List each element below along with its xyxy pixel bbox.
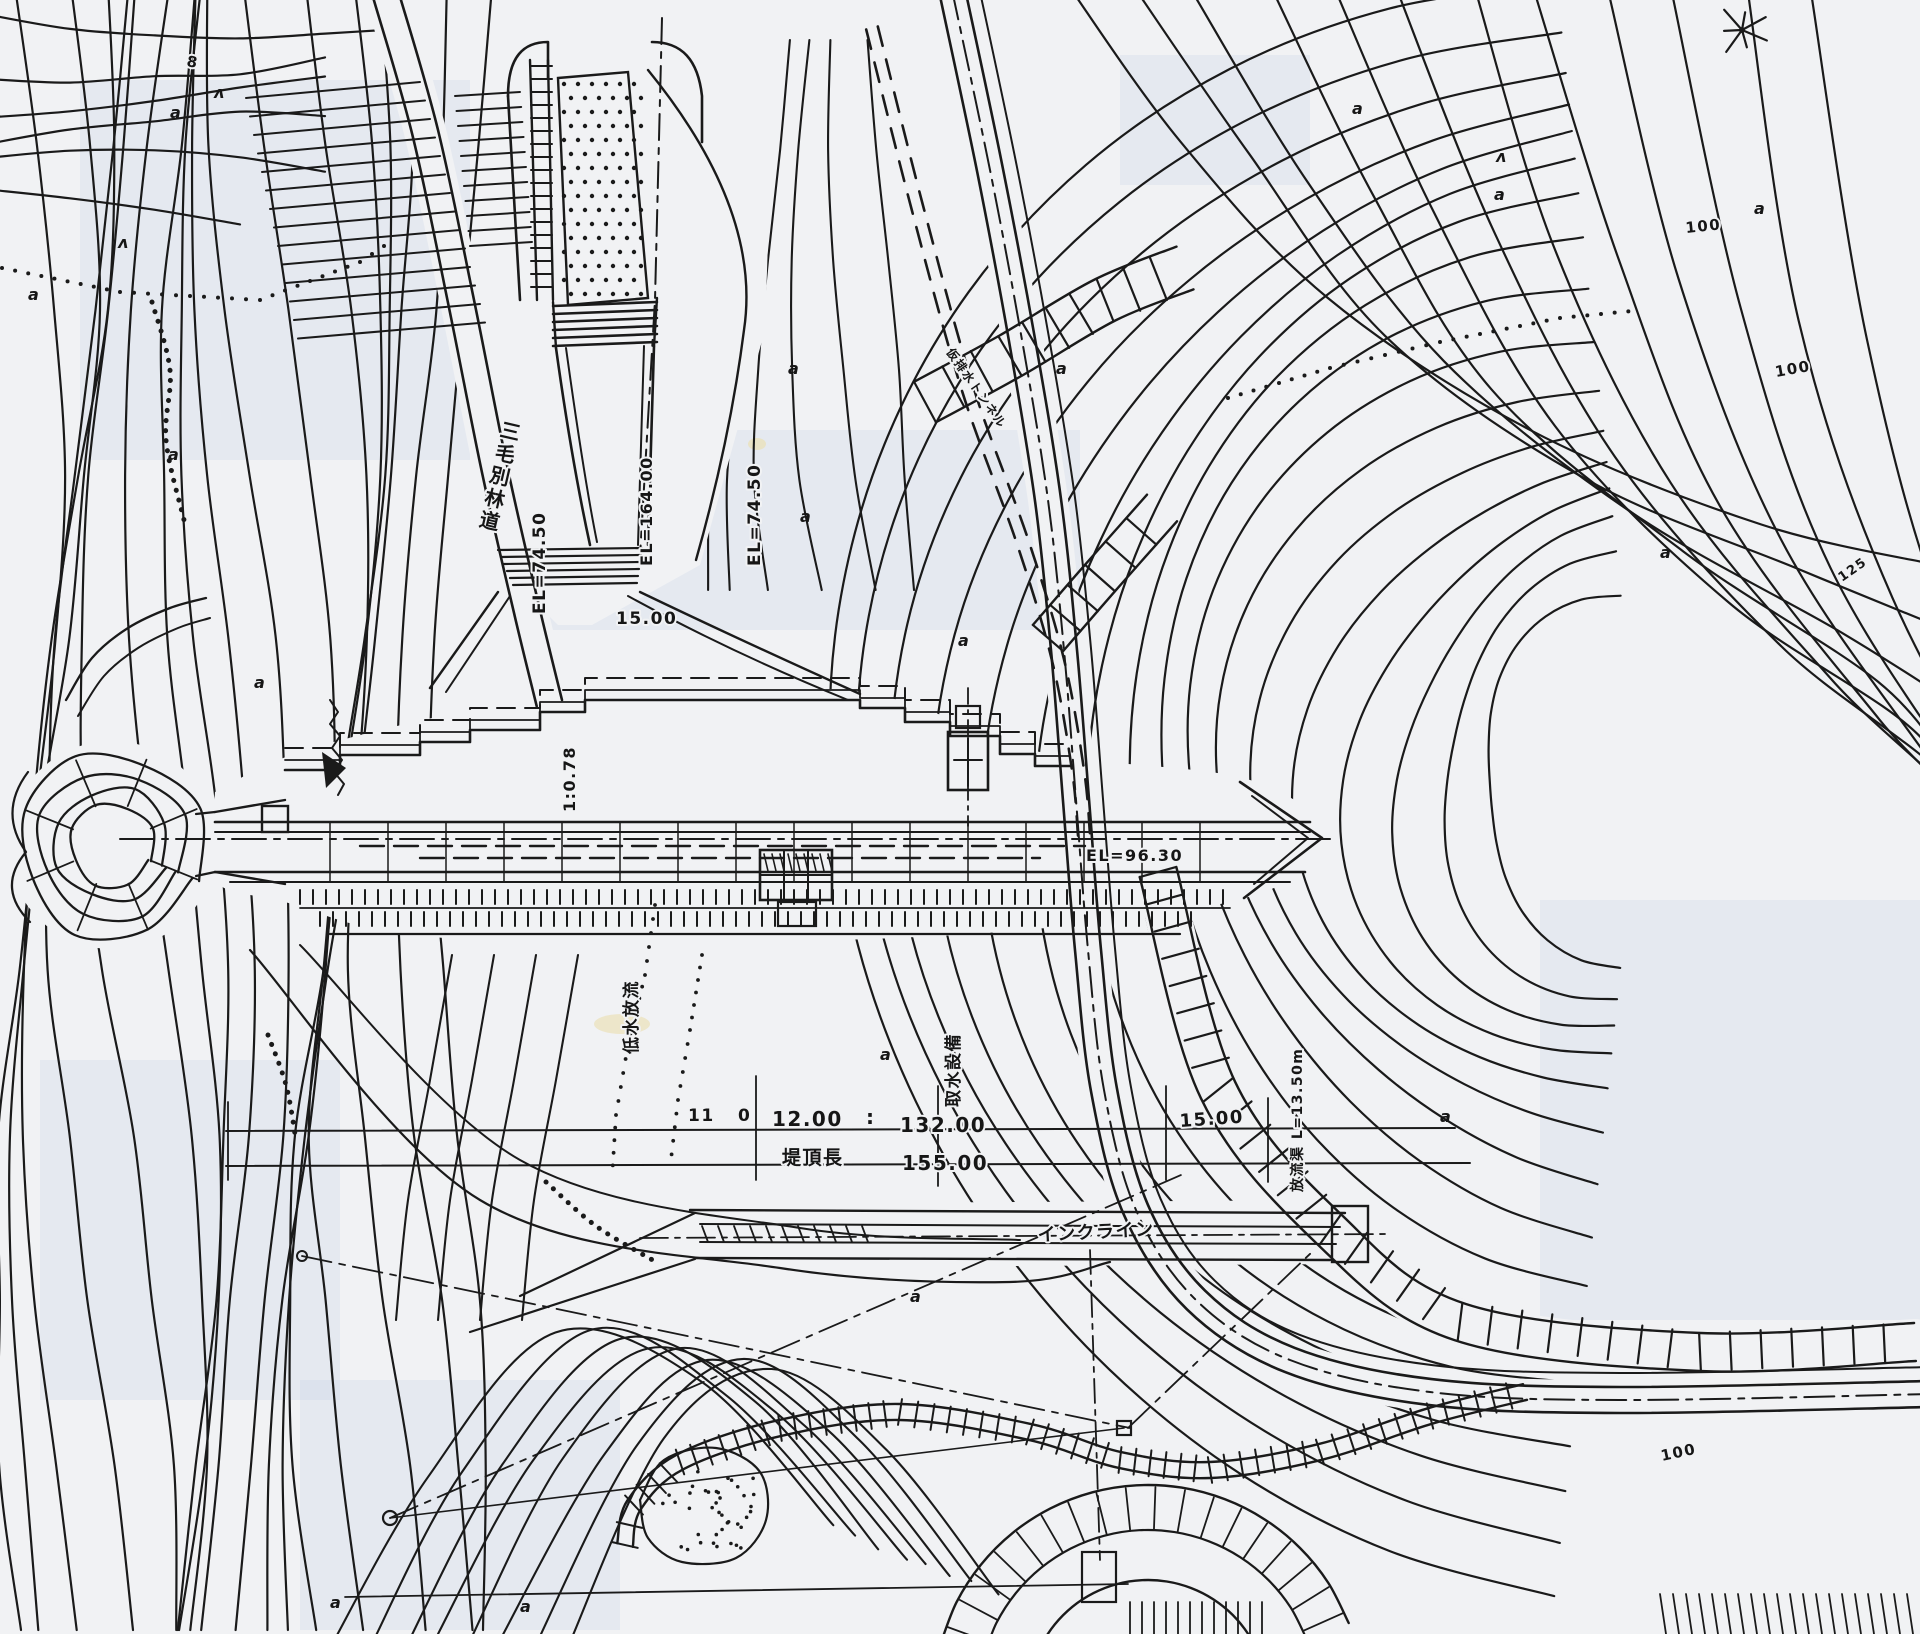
dot-fill [569,208,573,212]
dotted-line [1226,396,1230,400]
dotted-line [1518,324,1522,328]
dotted-line [1465,335,1469,339]
survey-mark: a [1056,359,1067,378]
dot-fill [716,1491,720,1495]
hatch-line [1223,1509,1242,1548]
dot-fill [707,1490,711,1494]
dot-fill [590,222,594,226]
dot-fill [667,1493,671,1497]
contour-line [0,14,410,38]
dotted-line [1356,360,1360,364]
hatch-line [1894,1594,1900,1634]
dot-fill [691,1485,695,1489]
dot-fill [590,82,594,86]
dotted-line [619,1085,623,1089]
dotted-line [643,973,647,977]
dotted-line [681,1070,685,1074]
contour-line [1534,0,1920,1057]
dot-fill [632,138,636,142]
survey-mark: a [910,1287,921,1306]
dotted-line [651,917,655,921]
dotted-line [1315,370,1319,374]
dot-fill [583,180,587,184]
map-label-group: 堤頂長 [782,1147,844,1169]
dotted-line [612,1151,616,1155]
hatch-line [1178,1490,1185,1532]
dotted-line [1585,313,1589,317]
dot-fill [751,1477,755,1481]
map-label-group: 取水設備 [943,1033,964,1107]
map-label-el-center: EL=164.00 [637,456,656,566]
hatch-line [995,1552,1026,1582]
survey-mark: a [330,1593,341,1612]
dot-fill [562,138,566,142]
hatch-line [733,1430,741,1455]
map-label-intake-facility: 取水設備 [943,1033,964,1107]
survey-mark: ʌ [213,83,224,102]
dot-fill [625,236,629,240]
contour-line [522,955,578,1320]
map-label-dim-11: 11 [688,1106,715,1126]
hatch-line [1777,1594,1783,1634]
map-label-group: 100 [1659,1440,1698,1465]
brick-band [1085,565,1115,592]
dot-fill [618,194,622,198]
hatch-line [1842,1594,1848,1634]
hatch-line [1764,1594,1770,1634]
dot-fill [715,1545,719,1549]
dot-fill [569,236,573,240]
dot-fill [742,1494,746,1498]
dotted-line [613,1138,617,1142]
dot-fill [718,1496,722,1500]
hatch-line [947,1407,951,1433]
map-label-el-left: EL=74.50 [530,512,550,614]
dot-fill [735,1543,739,1547]
dotted-line [1424,343,1428,347]
dot-fill [604,82,608,86]
dotted-line [1531,321,1535,325]
hatch-line [1042,1516,1064,1553]
hatch-line [1829,1594,1835,1634]
survey-mark: a [520,1597,531,1616]
dotted-line [675,1112,679,1116]
dot-fill [715,1533,719,1537]
dotted-line [692,1003,696,1007]
map-label-group: 8 [185,52,200,72]
hatch-line [1725,1594,1731,1634]
dot-fill [618,222,622,226]
dot-fill [639,180,643,184]
dot-fill [625,152,629,156]
map-label-group: 155.00 [902,1151,988,1175]
dot-fill [625,264,629,268]
dot-fill [597,264,601,268]
dot-fill [625,208,629,212]
dot-fill [611,292,615,296]
hatch-line [1855,1594,1861,1634]
survey-mark: a [170,103,181,122]
dot-fill [736,1485,740,1489]
dot-fill [673,1501,677,1505]
survey-mark: a [254,673,265,692]
dot-fill [590,138,594,142]
dot-fill [686,1548,690,1552]
dot-fill [618,138,622,142]
dot-fill [597,180,601,184]
dotted-line [673,1125,677,1129]
dotted-line [621,1071,625,1075]
dotted-line [160,292,164,296]
dotted-line [694,991,698,995]
dotted-line [258,298,262,302]
dotted-line [244,297,248,301]
dot-fill [604,110,608,114]
dot-fill [583,292,587,296]
map-label-dim-0: 0 [738,1106,751,1126]
dot-fill [730,1478,734,1482]
dot-fill [583,124,587,128]
map-label-contour-100-b: 100 [1774,357,1812,381]
dotted-line [202,295,206,299]
map-label-dim-155: 155.00 [902,1151,988,1175]
hatch-line [704,1440,712,1465]
dotted-line [1491,329,1495,333]
map-label-el-crest: EL=96.30 [1086,846,1183,865]
dotted-line [13,269,17,273]
dot-fill [583,236,587,240]
survey-mark: a [880,1045,891,1064]
dot-fill [576,138,580,142]
dot-fill [576,222,580,226]
dotted-line [52,277,56,281]
dot-fill [590,250,594,254]
dot-fill [749,1510,753,1514]
dot-fill [618,110,622,114]
map-label-group: 1:0.78 [560,746,579,812]
survey-mark: a [1440,1107,1451,1126]
survey-mark: a [1754,199,1765,218]
survey-mark: ʌ [1495,147,1506,166]
map-label-dim-colon: : [866,1105,876,1129]
channel-wall [430,592,498,688]
dot-fill [562,166,566,170]
dot-fill [688,1491,692,1495]
map-label-slope-ratio: 1:0.78 [560,746,579,812]
dot-fill [752,1493,756,1497]
hatch-line [1673,1594,1679,1634]
dotted-line [1558,316,1562,320]
dot-fill [696,1470,700,1474]
dot-fill [569,96,573,100]
dot-fill [639,124,643,128]
dot-fill [576,250,580,254]
dot-fill [611,208,615,212]
dotted-line [1303,374,1307,378]
map-label-group: 放流渠 L=13.50m [1289,1048,1306,1193]
scarp-line [78,618,210,716]
dotted-line [1369,356,1373,360]
dotted-line [1397,350,1401,354]
dotted-line [649,931,653,935]
dotted-line [382,244,386,248]
dot-fill [590,166,594,170]
hatch-line [1699,1594,1705,1634]
dotted-line [647,945,651,949]
dot-fill [597,96,601,100]
hatch-line [1255,1449,1259,1475]
map-label-group: 15.00 [616,609,677,629]
map-label-group: EL=96.30 [1086,846,1183,865]
brick-band [1106,541,1136,568]
map-label-crest-length: 堤頂長 [782,1147,844,1169]
dotted-line [370,252,374,256]
dotted-line [358,260,362,264]
dotted-line [230,296,234,300]
dot-fill [562,222,566,226]
dot-fill [736,1522,740,1526]
map-label-group: 11 [688,1106,715,1126]
hatch-line [1738,1594,1744,1634]
dot-fill [597,124,601,128]
dot-fill [604,166,608,170]
dotted-line [1342,363,1346,367]
dot-fill [679,1545,683,1549]
hatch-line [617,1522,642,1528]
dot-fill [590,278,594,282]
brick-band [1150,257,1167,300]
dot-fill [583,96,587,100]
dotted-line [698,966,702,970]
dotted-line [683,1056,687,1060]
contour-line [1473,0,1920,981]
hatch-line [1907,1594,1913,1634]
dot-fill [688,1507,692,1511]
dot-fill [625,180,629,184]
dot-fill [576,166,580,170]
hatch-line [960,1600,998,1620]
star-symbol [1739,27,1745,33]
dot-fill [576,82,580,86]
dot-fill [661,1502,665,1506]
dot-fill [604,222,608,226]
map-label-contour-100-c: 100 [1659,1440,1698,1465]
scan-tint [1120,55,1310,185]
dotted-line [216,296,220,300]
hatch-line [1292,1587,1328,1610]
dotted-line [105,287,109,291]
map-label-dim-12: 12.00 [772,1107,843,1131]
map-label-group: 低水放流 [621,980,642,1055]
hatch-line [1278,1563,1311,1591]
hatch-line [1017,1532,1043,1566]
dot-fill [632,166,636,170]
dot-fill [569,124,573,128]
survey-mark: a [28,285,39,304]
dot-fill [618,250,622,254]
dot-fill [562,250,566,254]
dotted-line [670,1153,674,1157]
hatch-line [1816,1594,1822,1634]
map-label-group: 12.00 [772,1107,843,1131]
dot-fill [632,278,636,282]
dot-fill [562,194,566,198]
dot-fill [576,110,580,114]
dot-fill [604,194,608,198]
hatch-line [976,1575,1011,1600]
map-label-group: 100 [1685,215,1722,237]
hatch-line [1790,1594,1796,1634]
hatch-line [1154,1487,1156,1530]
dotted-line [66,279,70,283]
dot-fill [618,166,622,170]
dotted-line [321,274,325,278]
dot-fill [714,1501,718,1505]
dot-fill [729,1542,733,1546]
dot-fill [739,1525,743,1529]
hatch-line [1868,1594,1874,1634]
dot-fill [632,110,636,114]
hatch-line [1164,1452,1167,1478]
dot-fill [611,236,615,240]
hatch-line [1201,1497,1214,1538]
dot-fill [604,250,608,254]
survey-mark: a [1660,543,1671,562]
hatch-line [931,1404,935,1430]
dotted-line [1277,381,1281,385]
hatch-line [1068,1503,1084,1543]
hatch-line [1712,1594,1718,1634]
dot-fill [632,82,636,86]
map-label-spot-8: 8 [185,52,200,72]
map-label-dim-15-right: 15.00 [1179,1107,1245,1132]
hatch-line [1243,1523,1267,1559]
dot-fill [562,82,566,86]
stone-outline [640,1448,768,1564]
dotted-line [79,282,83,286]
dot-fill [569,292,573,296]
dotted-line [0,266,4,270]
survey-mark: a [1494,185,1505,204]
dotted-line [1290,377,1294,381]
dot-fill [576,194,580,198]
dotted-line [614,1113,618,1117]
dotted-line [653,903,657,907]
dot-fill [569,264,573,268]
dotted-line [26,271,30,275]
dot-fill [597,152,601,156]
survey-mark: a [788,359,799,378]
dotted-line [671,1139,675,1143]
star-symbol [1724,10,1742,30]
dot-fill [576,278,580,282]
dot-fill [597,236,601,240]
dotted-line [688,1028,692,1032]
survey-mark: a [168,445,179,464]
dot-fill [726,1476,730,1480]
map-label-low-water-outlet: 低水放流 [621,980,642,1055]
hatch-line [1126,1488,1130,1531]
dot-fill [611,264,615,268]
hatch-line [963,1409,967,1435]
hatch-line [1262,1542,1291,1574]
map-label-group: EL=74.50 [745,464,765,566]
dot-fill [618,82,622,86]
hatch-line [1660,1594,1666,1634]
hatch-line [948,1627,988,1634]
map-label-group: EL=164.00 [637,456,656,566]
dotted-line [613,1126,617,1130]
dot-fill [739,1546,743,1550]
dotted-line [1572,315,1576,319]
dotted-line [645,959,649,963]
dot-fill [611,152,615,156]
map-label-group: EL=74.50 [530,512,550,614]
hatch-line [1149,1450,1152,1476]
scan-stain [748,438,766,450]
survey-mark: a [1352,99,1363,118]
dotted-line [679,1084,683,1088]
dotted-line [346,265,350,269]
dotted-line [617,1099,621,1103]
hatch-line [1751,1594,1757,1634]
map-label-el-right: EL=74.50 [745,464,765,566]
dotted-line [700,953,704,957]
hatch-line [823,1409,826,1435]
dot-fill [611,180,615,184]
cirque-line [984,1530,1307,1634]
hatch-line [1881,1594,1887,1634]
dot-fill [632,222,636,226]
map-label-contour-100-a: 100 [1685,215,1722,237]
contour-line [0,57,325,82]
dot-fill [720,1513,724,1517]
dotted-line [1599,312,1603,316]
dotted-line [39,274,43,278]
dotted-line [308,279,312,283]
hatch-line [1271,1447,1275,1473]
dot-fill [625,124,629,128]
dot-fill [583,264,587,268]
dot-fill [717,1511,721,1515]
dot-fill [562,278,566,282]
dot-fill [569,180,573,184]
dam-site-plan-svg: aaaaaaaaaaaaaaaaaʌʌʌ三毛別林道EL=74.50EL=164.… [0,0,1920,1634]
dotted-line [1478,332,1482,336]
survey-mark: ʌ [117,233,128,252]
dot-fill [696,1533,700,1537]
map-label-dim-15-upper: 15.00 [616,609,677,629]
map-label-dim-132: 132.00 [900,1113,986,1137]
hatch-line [1803,1594,1809,1634]
map-label-group: 132.00 [900,1113,986,1137]
dot-fill [562,110,566,114]
dot-fill [611,124,615,128]
dot-fill [639,96,643,100]
dotted-line [1613,311,1617,315]
channel-wall [446,596,510,692]
star-symbol [1726,30,1742,52]
dotted-line [1328,366,1332,370]
dotted-line [1239,392,1243,396]
dot-fill [632,194,636,198]
map-label-group: : [866,1105,876,1129]
dot-fill [583,152,587,156]
outlet-structure [1082,1552,1116,1602]
dotted-line [1451,337,1455,341]
map-label-group: 125 [1836,555,1871,585]
dotted-line [1505,327,1509,331]
